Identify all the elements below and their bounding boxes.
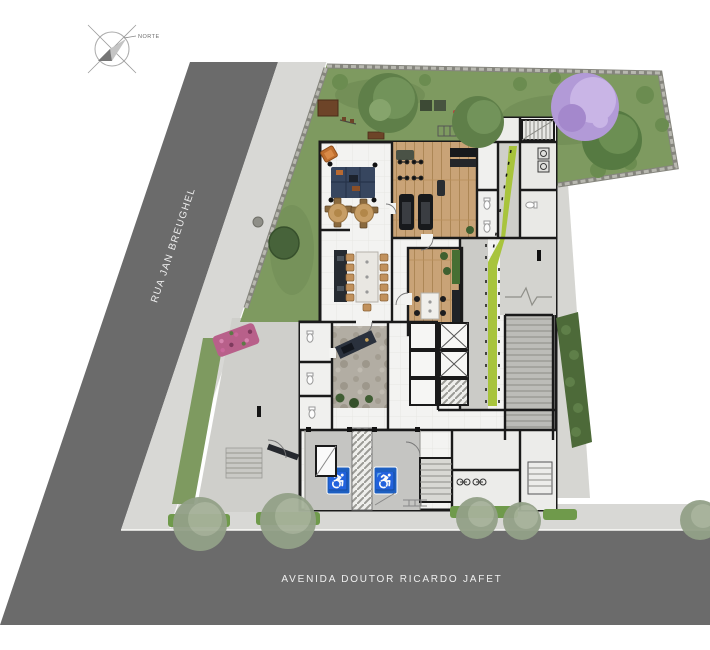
plant bbox=[443, 267, 451, 275]
weight-rack bbox=[450, 148, 476, 157]
play-mat bbox=[420, 100, 432, 111]
wc-annex bbox=[300, 322, 332, 430]
lobby-plant bbox=[349, 398, 359, 408]
street-tree bbox=[173, 497, 227, 551]
bar-item bbox=[337, 286, 344, 291]
coffee-table bbox=[349, 175, 358, 182]
street-bottom-label: AVENIDA DOUTOR RICARDO JAFET bbox=[281, 574, 502, 585]
purple-tree bbox=[551, 73, 619, 141]
garage-stair bbox=[420, 458, 452, 502]
treadmill bbox=[399, 194, 414, 230]
sofa-pillow bbox=[336, 170, 343, 175]
garden-pond bbox=[269, 227, 299, 259]
tree bbox=[358, 73, 418, 133]
round-planter bbox=[253, 217, 263, 227]
lobby-plant bbox=[336, 394, 345, 403]
service-stair bbox=[522, 120, 554, 140]
shaft-hatched bbox=[440, 379, 468, 405]
terrace-bench bbox=[537, 250, 541, 261]
moss-wall bbox=[452, 250, 460, 284]
sofa-pillow bbox=[352, 186, 360, 191]
bollard bbox=[257, 406, 261, 417]
treadmill bbox=[418, 194, 433, 230]
floor-lamp bbox=[373, 163, 378, 168]
core bbox=[410, 323, 468, 405]
street-tree bbox=[260, 493, 316, 549]
planter-box bbox=[318, 100, 338, 116]
car-ramp bbox=[505, 315, 553, 440]
tree bbox=[452, 96, 504, 148]
street-tree bbox=[456, 497, 498, 539]
floor-plan-svg: RUA JAN BREUGHEL AVENIDA DOUTOR RICARDO … bbox=[0, 0, 710, 650]
floor-lamp bbox=[372, 198, 377, 203]
garden-bench bbox=[368, 132, 384, 139]
core-room bbox=[410, 323, 436, 349]
plant bbox=[466, 226, 474, 234]
floor-lamp bbox=[329, 198, 334, 203]
floor-lamp bbox=[328, 162, 333, 167]
bench bbox=[437, 180, 445, 196]
weight-rack bbox=[450, 159, 476, 167]
svg-text:♿: ♿ bbox=[375, 471, 396, 491]
accessible-parking-icon: ♿ bbox=[374, 467, 397, 494]
norte-label: NORTE bbox=[138, 34, 160, 40]
plaza-steps bbox=[226, 448, 262, 478]
core-room bbox=[410, 379, 436, 405]
bar-item bbox=[337, 256, 344, 261]
elevator-shaft bbox=[440, 323, 468, 349]
exercise-mat bbox=[396, 150, 414, 160]
terrace bbox=[500, 238, 556, 315]
floor-plan-page: RUA JAN BREUGHEL AVENIDA DOUTOR RICARDO … bbox=[0, 0, 710, 650]
core-room bbox=[410, 351, 436, 377]
hedge bbox=[543, 509, 577, 520]
north-compass-icon: NORTE bbox=[88, 25, 160, 73]
street-tree bbox=[503, 502, 541, 540]
parking-walkway bbox=[352, 428, 372, 510]
play-mat bbox=[434, 100, 446, 111]
lobby-plant bbox=[365, 395, 373, 403]
plant bbox=[440, 252, 448, 260]
elevator-shaft bbox=[440, 351, 468, 377]
